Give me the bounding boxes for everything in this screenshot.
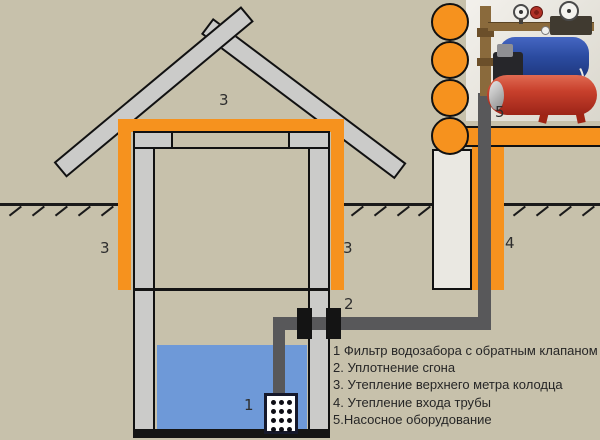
photo-riser-fitting: [477, 58, 494, 66]
ground-hatch: [536, 206, 549, 217]
legend: 1 Фильтр водозабора с обратным клапаном …: [333, 342, 599, 428]
well-wall-right: [308, 147, 330, 438]
legend-item-well-insulation: 3. Утепление верхнего метра колодца: [333, 376, 599, 393]
ground-line-right: [504, 203, 600, 206]
intake-filter: [264, 393, 298, 434]
well-insulation-right: [331, 132, 344, 290]
diagram-canvas: 3 3 3 2 1 4 5 1 Фильтр водозабора с обра…: [0, 0, 600, 440]
valve-handwheel-icon: [530, 6, 543, 19]
log-wall-circle: [431, 117, 469, 155]
filter-hole: [279, 400, 284, 405]
filter-hole: [271, 418, 276, 423]
ground-line-left: [0, 203, 119, 206]
filter-hole: [287, 409, 292, 414]
legend-item-union: 2. Уплотнение сгона: [333, 359, 599, 376]
ground-hatch: [513, 206, 526, 217]
ground-hatch: [374, 206, 387, 217]
ground-hatch: [101, 206, 114, 217]
marker-right-insulation: 3: [343, 240, 353, 256]
filter-hole: [287, 418, 292, 423]
ground-hatch: [78, 206, 91, 217]
log-wall-circle: [431, 41, 469, 79]
ground-line-middle: [344, 203, 432, 206]
ground-hatch: [9, 206, 22, 217]
filter-hole: [279, 418, 284, 423]
supply-pipe-vertical: [478, 93, 491, 325]
filter-hole: [279, 409, 284, 414]
marker-left-insulation: 3: [100, 240, 110, 256]
legend-item-pipe-entry: 4. Утепление входа трубы: [333, 394, 599, 411]
well-insulation-left: [118, 132, 131, 290]
well-wall-left: [133, 147, 155, 438]
pipe-union-left-nut: [297, 308, 312, 339]
marker-roof-insulation: 3: [219, 92, 229, 108]
well-joint-line: [133, 288, 330, 291]
pressure-gauge-icon: [513, 4, 529, 20]
marker-pipe-union: 2: [344, 296, 354, 312]
pipe-union-right-nut: [326, 308, 341, 339]
well-bottom: [133, 429, 330, 438]
legend-item-filter: 1 Фильтр водозабора с обратным клапаном: [333, 342, 599, 359]
ground-hatch: [55, 206, 68, 217]
gauge-needle: [567, 9, 571, 13]
foundation-wall: [432, 149, 472, 290]
drop-pipe: [273, 320, 285, 398]
ground-hatch: [397, 206, 410, 217]
log-wall-circle: [431, 79, 469, 117]
gauge-needle: [519, 10, 523, 14]
marker-intake-filter: 1: [244, 397, 254, 413]
photo-riser-pipe: [480, 6, 491, 96]
filter-hole: [287, 427, 292, 432]
pressure-gauge-icon: [559, 1, 579, 21]
filter-hole: [271, 409, 276, 414]
ground-hatch: [559, 206, 572, 217]
marker-pump-equipment: 5: [495, 104, 505, 120]
filter-hole: [279, 427, 284, 432]
ground-hatch: [582, 206, 595, 217]
roof-beam-right: [201, 18, 407, 179]
log-wall-circle: [431, 3, 469, 41]
legend-item-pump: 5.Насосное оборудование: [333, 411, 599, 428]
ball-valve-knob: [541, 26, 550, 35]
filter-hole: [271, 400, 276, 405]
filter-hole: [287, 400, 292, 405]
pump-junction-box: [497, 44, 513, 57]
ground-hatch: [418, 206, 431, 217]
filter-hole: [271, 427, 276, 432]
marker-pipe-entry-insulation: 4: [505, 235, 515, 251]
ground-hatch: [351, 206, 364, 217]
ground-hatch: [32, 206, 45, 217]
